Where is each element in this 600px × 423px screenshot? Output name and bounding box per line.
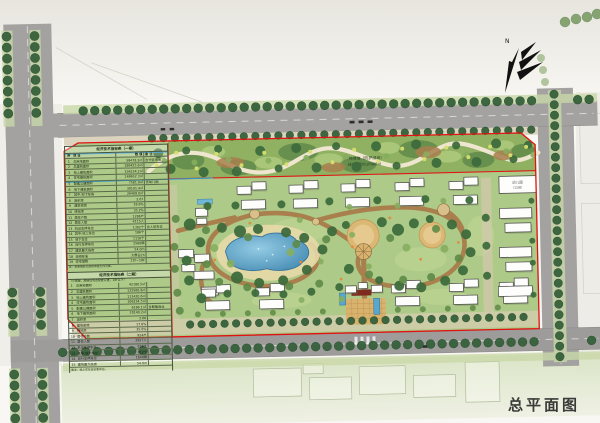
plan-caption: 总平面图 [508,394,580,415]
indicator-table-phase1: 经济技术指标表（一期） 序项 目数 值备 注1总用地面积58478.2㎡含代征绿… [64,144,171,270]
table-cell [149,343,174,348]
table-cell: 2.67 [116,197,145,202]
building [194,271,214,279]
table-cell: 1302个 [117,225,146,230]
table-cell: 含幼儿园 [145,179,170,184]
table-cell: 156234.2㎡ [116,169,145,174]
building [241,200,265,210]
table-cell [145,190,170,195]
table-cell [149,354,174,359]
table-cell: 含配套商业 [148,304,173,309]
table-cell: 30191.4㎡ [116,185,145,190]
table-cell: 大寒日2h [117,253,146,258]
building [252,182,266,190]
table-cell: 35.2% [116,208,145,213]
table-cell [147,287,172,292]
building [464,177,478,185]
building [345,286,356,293]
kindergarten-building: 幼儿园 （12班） [499,176,536,194]
building [505,223,531,233]
siteplan-image: 公共绿地（防护绿地） 绿化面积约10960㎡ [0,0,600,423]
table-cell: 35.6% [119,327,148,332]
building [356,179,370,187]
table-cell: 924户 [119,333,148,338]
building [500,208,532,219]
table-cell [144,162,169,167]
building [182,264,195,271]
table2-rows: 1总用地面积42180.5㎡2总建筑面积132560.8㎡3地上建筑面积1124… [67,282,173,373]
table-cell [146,218,171,223]
entry-pool-east [374,298,380,314]
table-cell: 26408.0㎡ [116,191,145,196]
table-cell [145,202,170,207]
building [260,299,284,309]
table-cell [149,360,174,365]
table-cell: 6186.1㎡ [119,305,148,310]
table-cell: 4115人 [117,219,146,224]
table-cell [148,332,173,337]
building [464,279,478,287]
table-cell [148,315,173,320]
table-cell: 1848辆 [120,355,149,360]
table-cell [146,252,171,257]
building [206,301,230,311]
kindergarten-label-1: 幼儿园 [512,179,523,184]
table-cell [148,321,173,326]
table-cell: 2.66 [119,316,148,321]
table-cell: 812个 [120,349,149,354]
building [498,286,532,297]
building [410,178,424,186]
table-cell: 17.8% [119,321,148,326]
table-cell: 数 值 [115,152,144,157]
building [396,296,420,306]
north-label: N [505,38,510,45]
building [514,278,528,286]
table-cell [146,235,171,240]
building [453,195,477,205]
building [395,183,409,191]
table-cell [145,196,170,201]
building [449,283,463,291]
table-cell [148,326,173,331]
table-cell [149,349,174,354]
table-cell [148,310,173,315]
table-cell: 54.0m [120,361,149,366]
building [358,282,367,288]
table-cell: 186425.6㎡ [115,163,144,168]
table-cell [146,213,171,218]
table-cell [145,185,170,190]
table-cell: 18.6% [116,202,145,207]
table-cell: 112420.6㎡ [118,293,147,298]
building [341,184,355,192]
table-cell: 42180.5㎡ [118,282,147,287]
table-cell: 186个 [117,230,146,235]
table-cell [147,258,172,263]
table-cell: 54.0m [117,247,146,252]
building [293,199,317,209]
building [454,295,478,305]
table-cell: 148652.3㎡ [116,174,145,179]
building [449,181,463,189]
table-cell [146,230,171,235]
building [304,181,318,189]
building [197,218,207,224]
table-note: 注：本表指标以规划审批文件为准。 [68,263,170,270]
table-cell [145,174,170,179]
table-cell: 含人防车位 [146,224,171,229]
table-cell: 106234.5㎡ [119,299,148,304]
top-wash [0,0,600,104]
building [371,285,382,292]
building [499,247,531,258]
building [237,186,251,194]
table-cell: 备 注 [144,151,169,156]
table-cell: 11F~18F [118,258,147,263]
building [289,185,303,193]
indicator-table-phase2: 经济技术指标表（二期） （小高层、高层住宅及配套公建，18F以下） 1总用地面积… [67,270,173,373]
table-cell: 7581.9㎡ [116,180,145,185]
table-cell [148,338,173,343]
table-cell: 58478.2㎡ [115,157,144,162]
table-cell: 2957人 [119,338,148,343]
table-cell [148,298,173,303]
table-cell: 2560辆 [117,241,146,246]
table-cell: 含代征绿地 [144,157,169,162]
kindergarten-label-2: （12班） [511,184,524,189]
table1-rows: 序项 目数 值备 注1总用地面积58478.2㎡含代征绿地2总建筑面积18642… [64,151,171,270]
building [506,262,532,272]
axis-plaza [355,243,371,259]
indicator-panel: 经济技术指标表（一期） 序项 目数 值备 注1总用地面积58478.2㎡含代征绿… [64,143,172,337]
table-cell [145,168,170,173]
table-cell: 建筑最大高度 [77,361,120,367]
table-cell [147,293,172,298]
table-cell: 20140.2㎡ [119,310,148,315]
table-cell: 1116个 [117,236,146,241]
table-cell [145,207,170,212]
table-cell: 132560.8㎡ [118,288,147,293]
table-cell [146,241,171,246]
table-cell [146,246,171,251]
table-cell: 1286户 [117,213,146,218]
table-cell [147,282,172,287]
building [399,196,423,206]
table-cell: 936个 [120,344,149,349]
